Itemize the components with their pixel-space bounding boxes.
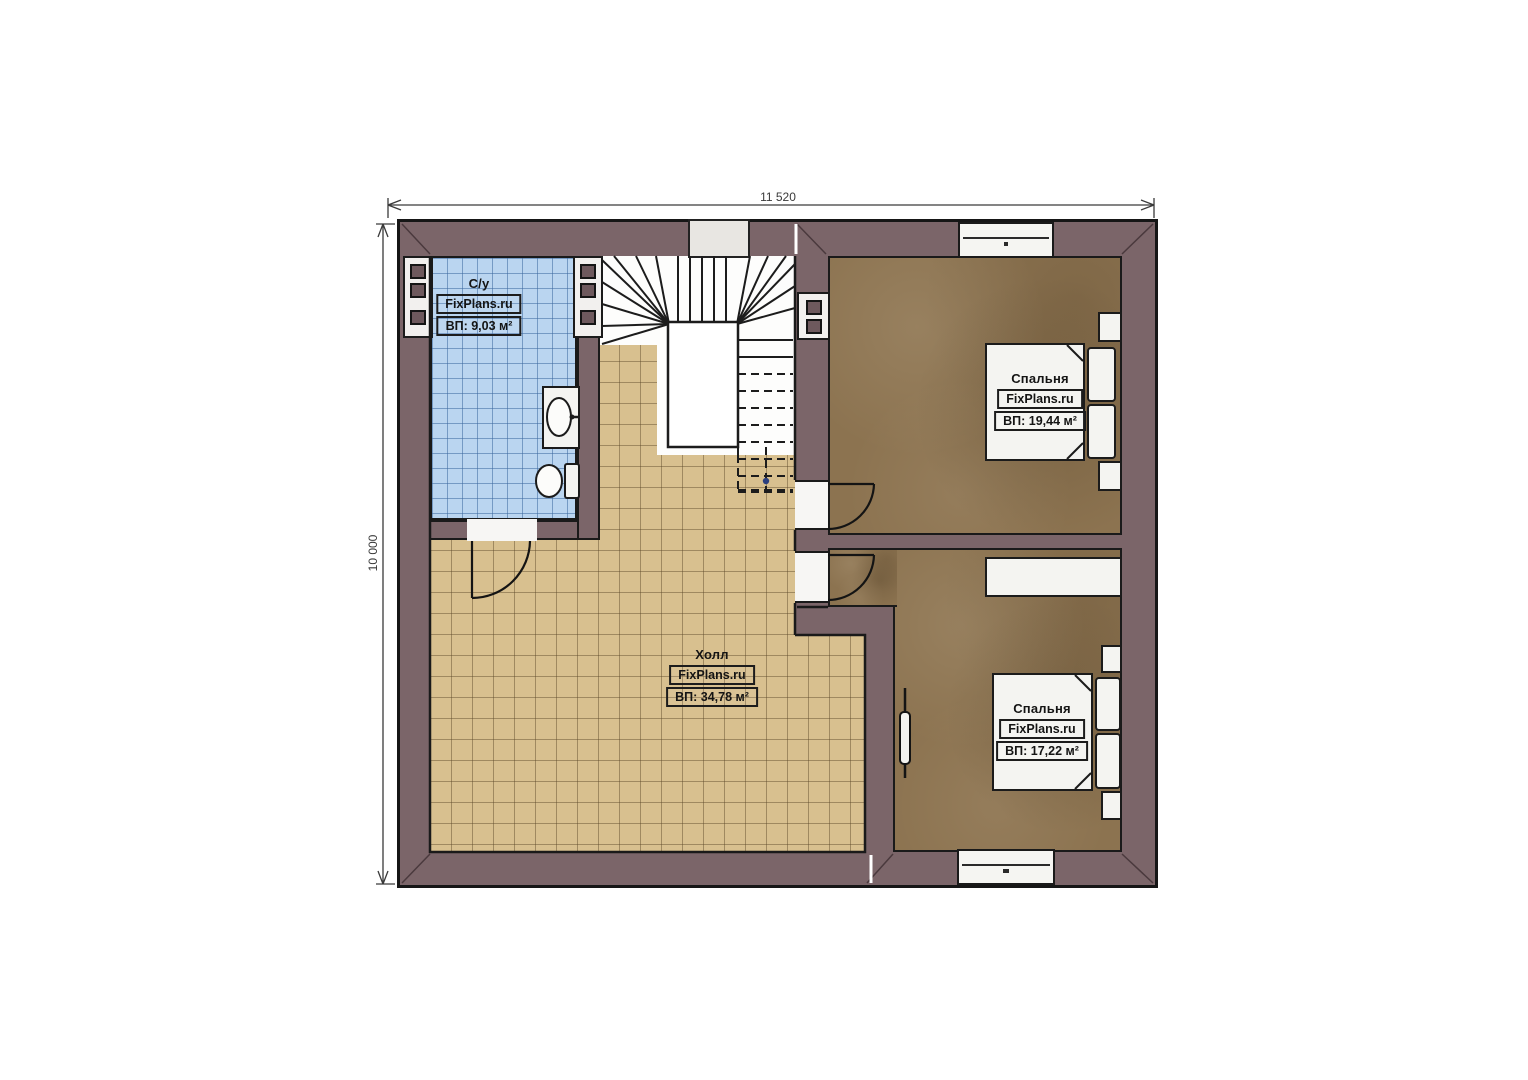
brand-box: FixPlans.ru bbox=[997, 389, 1082, 409]
wardrobe-bedroom2 bbox=[985, 557, 1122, 597]
window-bedroom2-bottom bbox=[957, 849, 1055, 885]
brand-box: FixPlans.ru bbox=[436, 294, 521, 314]
dimension-left-label: 10 000 bbox=[366, 523, 380, 583]
vent-square bbox=[806, 319, 822, 334]
bedroom1-door-opening bbox=[795, 480, 828, 530]
bedroom2-label: Спальня FixPlans.ru ВП: 17,22 м² bbox=[996, 701, 1088, 761]
vent-square bbox=[806, 300, 822, 315]
vent-square bbox=[580, 310, 596, 325]
hall-label: Холл FixPlans.ru ВП: 34,78 м² bbox=[666, 647, 758, 707]
area-box: ВП: 9,03 м² bbox=[437, 316, 522, 336]
area-box: ВП: 34,78 м² bbox=[666, 687, 758, 707]
bedroom2-alcove-floor bbox=[828, 548, 897, 607]
pillow bbox=[1087, 347, 1116, 402]
pillow bbox=[1087, 404, 1116, 459]
vent-square bbox=[410, 283, 426, 298]
room-name: Спальня bbox=[996, 701, 1088, 716]
bathroom-label: С/у FixPlans.ru ВП: 9,03 м² bbox=[436, 276, 521, 336]
vent-block-bathroom-left bbox=[403, 256, 433, 338]
nightstand bbox=[1098, 461, 1122, 491]
bedroom2-door-opening bbox=[795, 551, 828, 603]
staircase-area bbox=[600, 256, 795, 345]
window-bedroom1-top bbox=[958, 222, 1054, 258]
pillow bbox=[1095, 733, 1121, 789]
vent-square bbox=[410, 310, 426, 325]
room-name: Холл bbox=[666, 647, 758, 662]
staircase-area-lower bbox=[657, 345, 795, 455]
room-name: С/у bbox=[436, 276, 521, 291]
vent-square bbox=[410, 264, 426, 279]
area-box: ВП: 19,44 м² bbox=[994, 411, 1086, 431]
nightstand bbox=[1098, 312, 1122, 342]
nightstand bbox=[1101, 791, 1122, 820]
room-name: Спальня bbox=[994, 371, 1086, 386]
bathroom-bottom-wall-right bbox=[537, 520, 577, 540]
window-frame-line bbox=[1004, 242, 1008, 246]
area-box: ВП: 17,22 м² bbox=[996, 741, 1088, 761]
vent-square bbox=[580, 264, 596, 279]
pillow bbox=[1095, 677, 1121, 731]
window-frame-line bbox=[962, 864, 1050, 866]
vent-square bbox=[580, 283, 596, 298]
floor-plan-page: 11 520 10 000 С/у FixPlans.ru ВП: 9,03 м… bbox=[0, 0, 1528, 1080]
bedroom1-label: Спальня FixPlans.ru ВП: 19,44 м² bbox=[994, 371, 1086, 431]
vent-block-bathroom-right bbox=[573, 256, 603, 338]
nightstand bbox=[1101, 645, 1122, 673]
window-frame-line bbox=[963, 237, 1049, 239]
brand-box: FixPlans.ru bbox=[999, 719, 1084, 739]
brand-box: FixPlans.ru bbox=[669, 665, 754, 685]
chimney-block bbox=[688, 219, 750, 258]
bathroom-door-opening bbox=[467, 519, 537, 541]
window-frame-line bbox=[1003, 869, 1009, 873]
bathroom-bottom-wall-left bbox=[430, 520, 467, 540]
vent-block-stairwell bbox=[797, 292, 830, 340]
dimension-top-label: 11 520 bbox=[748, 190, 808, 204]
